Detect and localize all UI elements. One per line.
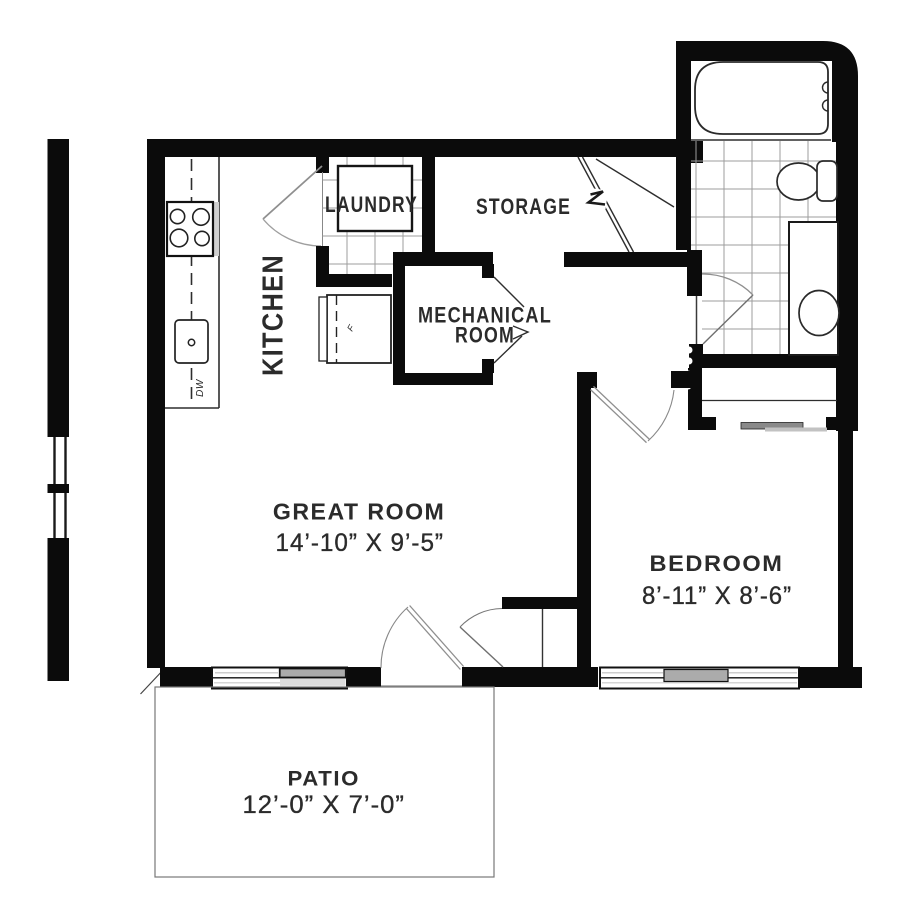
svg-text:ROOM: ROOM bbox=[455, 323, 515, 348]
svg-text:14’-10” X 9’-5”: 14’-10” X 9’-5” bbox=[276, 529, 445, 557]
svg-text:STORAGE: STORAGE bbox=[476, 194, 571, 219]
svg-text:LAUNDRY: LAUNDRY bbox=[325, 192, 418, 217]
svg-text:GREAT ROOM: GREAT ROOM bbox=[273, 499, 445, 525]
svg-text:DW: DW bbox=[195, 378, 206, 397]
svg-text:8’-11” X 8’-6”: 8’-11” X 8’-6” bbox=[642, 582, 792, 610]
svg-text:PATIO: PATIO bbox=[288, 768, 361, 791]
svg-text:KITCHEN: KITCHEN bbox=[258, 254, 290, 376]
svg-text:12’-0” X 7’-0”: 12’-0” X 7’-0” bbox=[243, 791, 406, 819]
svg-text:BEDROOM: BEDROOM bbox=[650, 551, 784, 576]
